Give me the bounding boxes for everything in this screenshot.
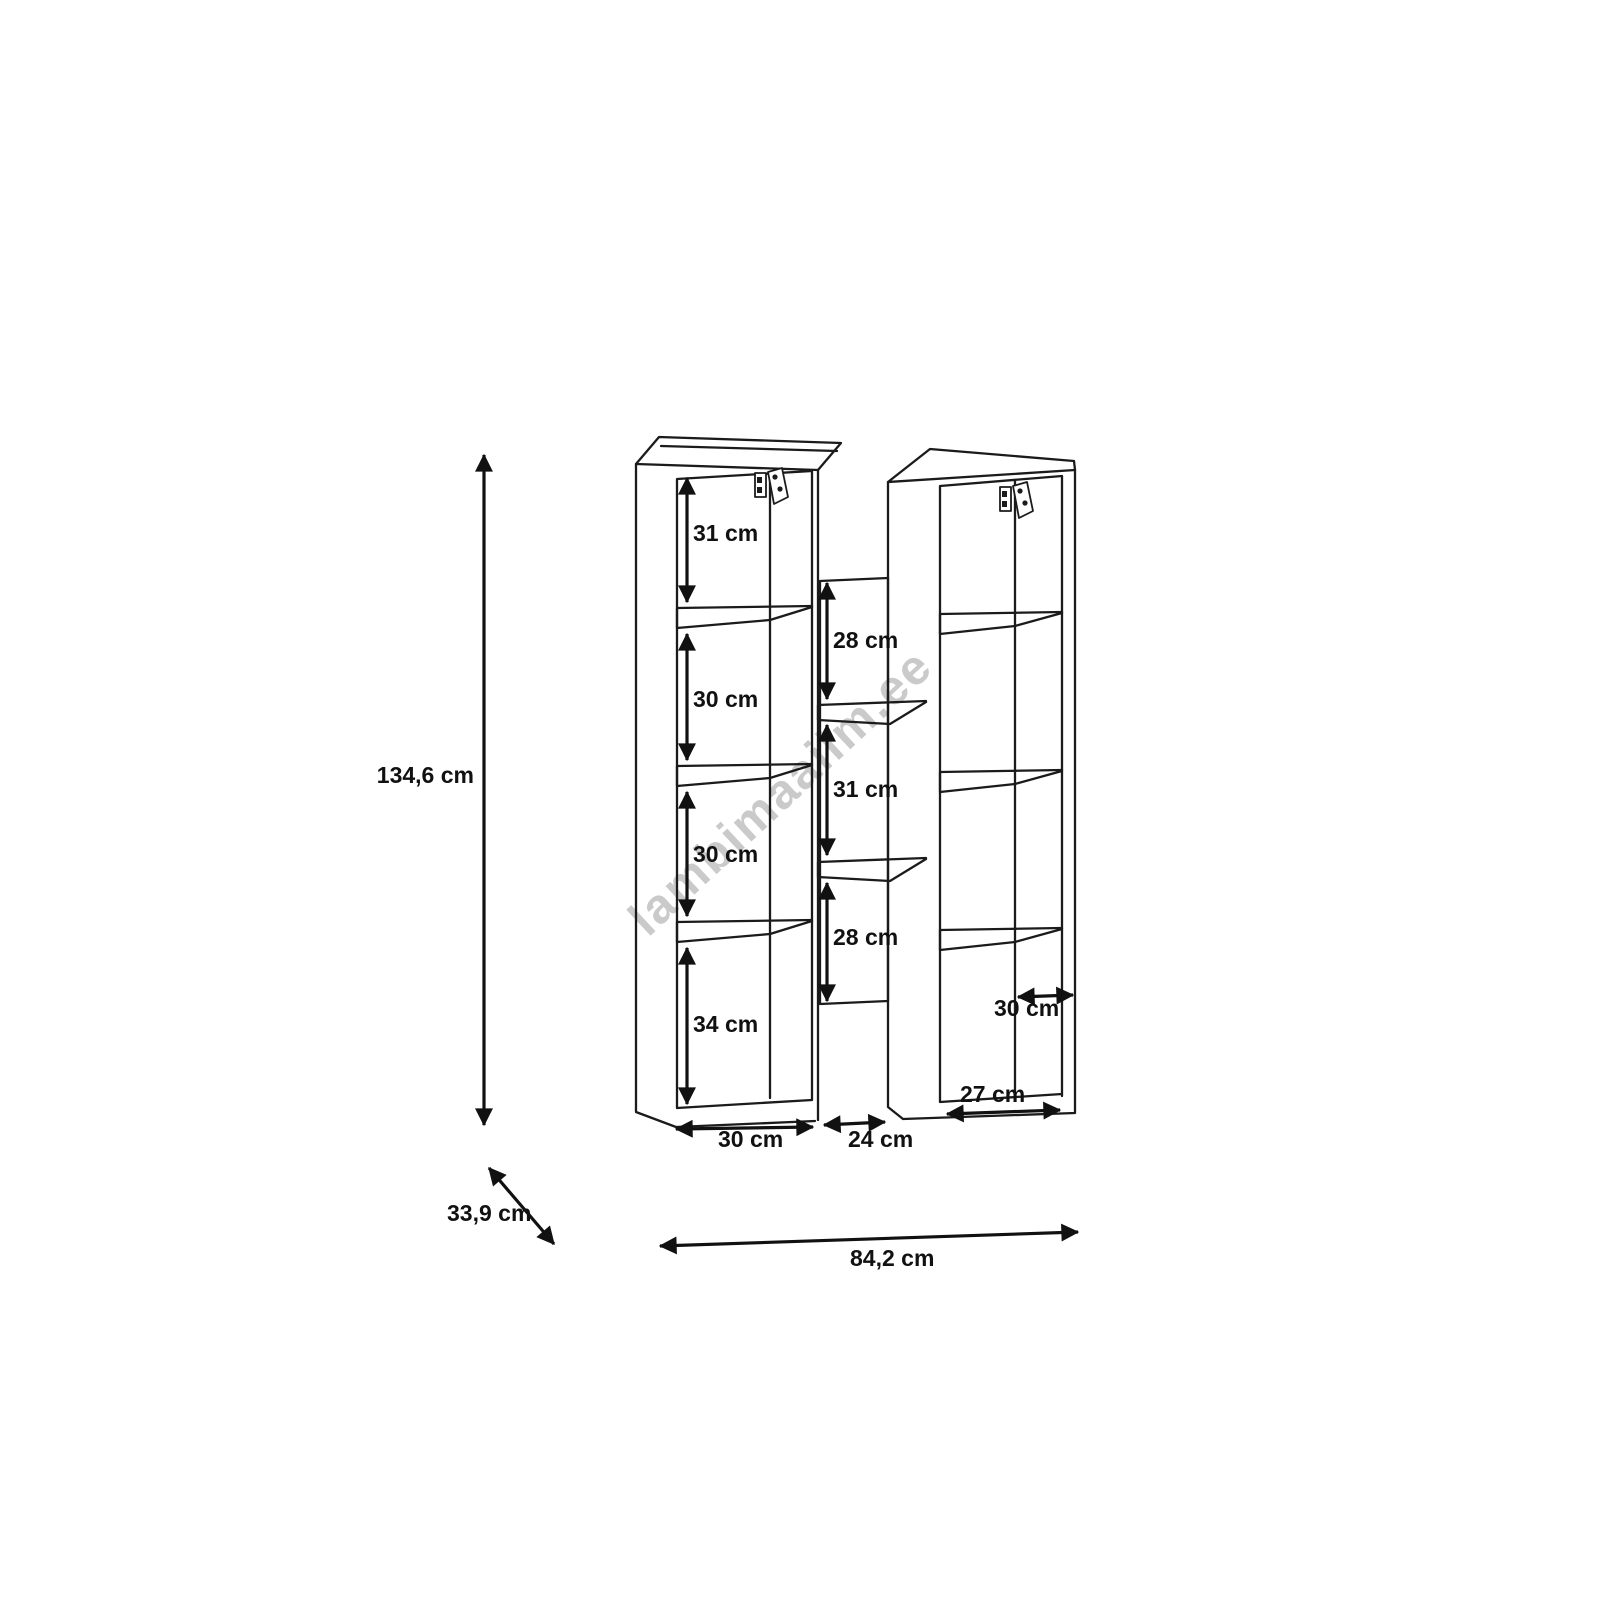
right-column-outline xyxy=(888,470,1075,1119)
left-column-top-inner-edge xyxy=(661,446,837,451)
dim-depth-label: 33,9 cm xyxy=(447,1200,531,1226)
dim-total-width-label: 84,2 cm xyxy=(850,1245,934,1271)
bracket-plate xyxy=(755,473,766,497)
left-column-shelf-3 xyxy=(677,920,812,942)
dim-left-cell-1: 31 cm xyxy=(687,478,758,602)
dim-total-width-arrow xyxy=(660,1232,1078,1246)
dim-left-cell-2: 30 cm xyxy=(687,634,758,760)
dim-left-cell-4: 34 cm xyxy=(687,948,758,1104)
furniture-dimension-diagram: lambimaailm.ee xyxy=(0,0,1600,1600)
dim-middle-width-arrow xyxy=(824,1122,885,1125)
dim-right-bottom-width-label: 27 cm xyxy=(960,1081,1025,1107)
dim-total-height-label: 134,6 cm xyxy=(377,762,474,788)
dim-middle-width: 24 cm xyxy=(824,1122,913,1152)
dim-left-cell-1-label: 31 cm xyxy=(693,520,758,546)
dim-left-width: 30 cm xyxy=(676,1126,813,1152)
wall-mount-bracket-icon xyxy=(1000,482,1033,518)
wall-mount-bracket-icon xyxy=(755,468,788,504)
dim-left-width-label: 30 cm xyxy=(718,1126,783,1152)
dim-right-bottom-width: 27 cm xyxy=(947,1081,1060,1114)
dim-total-width: 84,2 cm xyxy=(660,1232,1078,1271)
right-column-shelf-1 xyxy=(940,612,1062,634)
middle-shelf-2 xyxy=(818,858,926,881)
dim-left-cell-2-label: 30 cm xyxy=(693,686,758,712)
bracket-plate xyxy=(1000,487,1011,511)
right-column-shelf-2 xyxy=(940,770,1062,792)
dimension-annotations: 134,6 cm 33,9 cm 84,2 cm 31 cm 30 cm 30 … xyxy=(377,455,1078,1271)
left-column-top-face xyxy=(636,437,841,470)
dim-middle-cell-2-label: 31 cm xyxy=(833,776,898,802)
dim-middle-cell-1-label: 28 cm xyxy=(833,627,898,653)
dim-depth: 33,9 cm xyxy=(447,1168,554,1244)
dim-right-inner-width-label: 30 cm xyxy=(994,995,1059,1021)
diagram-page: lambimaailm.ee xyxy=(0,0,1600,1600)
left-column-shelf-1 xyxy=(677,606,812,628)
dim-left-cell-4-label: 34 cm xyxy=(693,1011,758,1037)
dim-total-height: 134,6 cm xyxy=(377,455,484,1125)
dim-middle-cell-3-label: 28 cm xyxy=(833,924,898,950)
right-column-shelf-3 xyxy=(940,928,1062,950)
dim-middle-width-label: 24 cm xyxy=(848,1126,913,1152)
dim-left-cell-3-label: 30 cm xyxy=(693,841,758,867)
